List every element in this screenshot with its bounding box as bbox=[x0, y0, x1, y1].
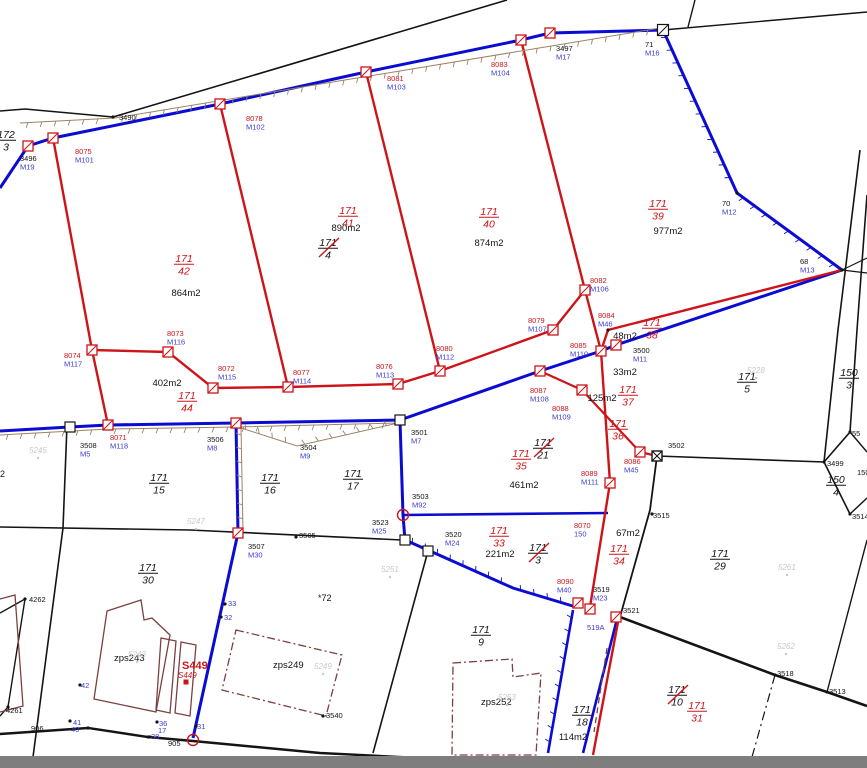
parcel-171-10-den: 10 bbox=[671, 697, 683, 709]
label-55: 55 bbox=[852, 429, 860, 438]
label-3515: 3515 bbox=[653, 511, 670, 520]
label-3518: 3518 bbox=[777, 669, 794, 678]
parcel-172-3-num: 172 bbox=[0, 129, 15, 141]
surv-marker-dot bbox=[86, 726, 89, 729]
area-label-890m2: 890m2 bbox=[331, 223, 360, 234]
parcel-171-18-num: 171 bbox=[573, 704, 591, 716]
label-3490: 3490 bbox=[119, 113, 136, 122]
parcel-171-31-num: 171 bbox=[688, 700, 706, 712]
bottom-bar bbox=[0, 756, 867, 768]
point-code-M24: M24 bbox=[445, 539, 460, 548]
parcel-171-31-den: 31 bbox=[691, 713, 703, 725]
point-code-M112: M112 bbox=[436, 353, 454, 362]
parcel-150-3-num: 150 bbox=[840, 367, 858, 379]
watermark-dot bbox=[37, 457, 39, 459]
parcel-171-29-den: 29 bbox=[713, 561, 726, 573]
point-code-M117: M117 bbox=[64, 360, 82, 369]
parcel-172-3-den: 3 bbox=[3, 142, 9, 154]
surv-marker-dot bbox=[822, 460, 825, 463]
point-code-150: 150 bbox=[574, 530, 587, 539]
watermark-5261: 5261 bbox=[778, 563, 796, 572]
parcel-171-44-num: 171 bbox=[178, 390, 196, 402]
label-3505: 3505 bbox=[299, 531, 316, 540]
parcel-171-44-den: 44 bbox=[181, 403, 193, 415]
parcel-171-40-num: 171 bbox=[480, 206, 498, 218]
point-code-M13: M13 bbox=[800, 266, 815, 275]
parcel-171-37-den: 37 bbox=[622, 397, 635, 409]
watermark-dot bbox=[786, 574, 788, 576]
label-38: 38 bbox=[151, 732, 159, 741]
surv-marker-white-square bbox=[423, 546, 433, 556]
area-label-977m2: 977m2 bbox=[653, 226, 682, 237]
point-code-M92: M92 bbox=[412, 501, 427, 510]
point-code-M19: M19 bbox=[20, 163, 35, 172]
point-code-M45: M45 bbox=[624, 466, 639, 475]
area-label-221m2: 221m2 bbox=[485, 549, 514, 560]
parcel-171-33-num: 171 bbox=[490, 525, 508, 537]
surv-marker-dot bbox=[111, 115, 114, 118]
point-code-M11: M11 bbox=[633, 355, 647, 364]
watermark-5262: 5262 bbox=[777, 642, 795, 651]
parcel-171-21-den: 21 bbox=[536, 450, 549, 462]
point-code-M111: M111 bbox=[581, 478, 599, 487]
watermark-dot bbox=[389, 576, 391, 578]
surv-marker-dot bbox=[321, 714, 324, 717]
area-label-33m2: 33m2 bbox=[613, 367, 637, 378]
watermark-5245: 5245 bbox=[29, 446, 47, 455]
point-code-M23: M23 bbox=[593, 594, 608, 603]
label-3521: 3521 bbox=[623, 606, 640, 615]
area-label-114m2: 114m2 bbox=[559, 732, 587, 743]
surv-marker-dot bbox=[294, 535, 297, 538]
parcel-150-3-den: 3 bbox=[846, 380, 852, 392]
point-code-M12: M12 bbox=[722, 208, 737, 217]
label-40: 40 bbox=[71, 725, 79, 734]
watermark-5243: 5243 bbox=[128, 650, 146, 659]
point-code-M8: M8 bbox=[207, 444, 217, 453]
point-code-M16: M16 bbox=[645, 49, 660, 58]
surv-marker-white-square bbox=[400, 535, 410, 545]
parcel-171-9-num: 171 bbox=[472, 624, 490, 636]
point-code-M46: M46 bbox=[598, 320, 613, 329]
surv-marker-dot bbox=[219, 615, 222, 618]
parcel-171-36-num: 171 bbox=[609, 418, 627, 430]
point-code-M116: M116 bbox=[167, 338, 185, 347]
point-code-M17: M17 bbox=[556, 53, 571, 62]
parcel-150-4-num: 150 bbox=[827, 474, 845, 486]
parcel-171-15-num: 171 bbox=[150, 472, 168, 484]
parcel-171-17-num: 171 bbox=[344, 468, 362, 480]
point-code-M113: M113 bbox=[376, 371, 394, 380]
label-*72: *72 bbox=[318, 593, 332, 603]
parcel-171-39-num: 171 bbox=[649, 198, 667, 210]
point-code-M25: M25 bbox=[372, 527, 387, 536]
label-32: 32 bbox=[224, 613, 232, 622]
label-zps249: zps249 bbox=[273, 660, 304, 671]
watermark-5249: 5249 bbox=[314, 662, 332, 671]
cadastral-map-stage: 3496M198075M1018078M1028081M1038083M1043… bbox=[0, 0, 867, 768]
parcel-171-9-den: 9 bbox=[478, 637, 484, 649]
label-3513: 3513 bbox=[829, 687, 846, 696]
label-33: 33 bbox=[228, 599, 236, 608]
parcel-171-5-den: 5 bbox=[744, 384, 750, 396]
surv-marker-dot bbox=[23, 597, 26, 600]
label-3514: 3514 bbox=[852, 512, 867, 521]
watermark-dot bbox=[322, 673, 324, 675]
parcel-171-16-num: 171 bbox=[261, 472, 279, 484]
parcel-150-4-den: 4 bbox=[833, 487, 839, 499]
area-label-48m2: 48m2 bbox=[613, 331, 637, 342]
point-code-M101: M101 bbox=[75, 156, 94, 165]
parcel-171-17-den: 17 bbox=[347, 481, 360, 493]
point-code-M5: M5 bbox=[80, 450, 90, 459]
surv-marker-dot bbox=[840, 268, 843, 271]
parcel-171-42-den: 42 bbox=[178, 266, 190, 278]
watermark-5247: 5247 bbox=[187, 517, 205, 526]
surv-marker-white-square bbox=[395, 415, 405, 425]
parcel-171-18-den: 18 bbox=[576, 717, 588, 729]
area-label-125m2: 125m2 bbox=[587, 393, 616, 404]
label-519A: 519A bbox=[587, 623, 605, 632]
parcel-171-30-num: 171 bbox=[139, 562, 157, 574]
point-code-M102: M102 bbox=[246, 123, 265, 132]
point-code-M9: M9 bbox=[300, 452, 310, 461]
label-3499: 3499 bbox=[827, 459, 844, 468]
label-31: 31 bbox=[197, 722, 205, 731]
parcel-171-30-den: 30 bbox=[142, 575, 154, 587]
surv-marker-dot bbox=[606, 328, 609, 331]
label-4262: 4262 bbox=[29, 595, 46, 604]
label-4261: 4261 bbox=[6, 706, 23, 715]
point-code-M110: M110 bbox=[570, 350, 588, 359]
point-code-M115: M115 bbox=[218, 373, 236, 382]
point-code-M103: M103 bbox=[387, 83, 406, 92]
label-906: 906 bbox=[31, 724, 44, 733]
parcel-171-38-den: 38 bbox=[646, 330, 658, 342]
label-42: 42 bbox=[81, 681, 89, 690]
watermark-5253: 5253 bbox=[498, 693, 516, 702]
area-label-402m2: 402m2 bbox=[152, 378, 181, 389]
parcel-171-33-den: 33 bbox=[493, 538, 505, 550]
area-label-461m2: 461m2 bbox=[509, 480, 538, 491]
parcel-171-34-den: 34 bbox=[613, 556, 625, 568]
surv-marker-dot bbox=[735, 191, 738, 194]
watermark-dot bbox=[506, 704, 508, 706]
parcel-171-35-num: 171 bbox=[512, 448, 530, 460]
label-3540: 3540 bbox=[326, 711, 343, 720]
surv-marker-dot bbox=[68, 719, 71, 722]
area-label-874m2: 874m2 bbox=[474, 238, 503, 249]
parcel-171-42-num: 171 bbox=[175, 253, 193, 265]
cadastral-map-canvas[interactable]: 3496M198075M1018078M1028081M1038083M1043… bbox=[0, 0, 867, 768]
parcel-171-38-num: 171 bbox=[643, 317, 661, 329]
parcel-171-35-den: 35 bbox=[515, 461, 527, 473]
point-code-M108: M108 bbox=[530, 395, 549, 404]
point-code-M114: M114 bbox=[293, 377, 311, 386]
parcel-171-15-den: 15 bbox=[153, 485, 165, 497]
watermark-5251: 5251 bbox=[381, 565, 399, 574]
label-3502: 3502 bbox=[668, 441, 685, 450]
label-S449: S449 bbox=[178, 671, 197, 680]
point-code-M106: M106 bbox=[590, 285, 609, 294]
surv-marker-white-square bbox=[65, 422, 75, 432]
label-150: 150 bbox=[857, 468, 867, 477]
parcel-171-37-num: 171 bbox=[619, 384, 637, 396]
point-code-M109: M109 bbox=[552, 413, 571, 422]
parcel-171-36-den: 36 bbox=[612, 431, 624, 443]
parcel-171-41-num: 171 bbox=[339, 205, 357, 217]
watermark-dot bbox=[195, 528, 197, 530]
label-905: 905 bbox=[168, 739, 181, 748]
point-code-M107: M107 bbox=[528, 325, 547, 334]
watermark-dot bbox=[785, 653, 787, 655]
label-2: 2 bbox=[0, 469, 5, 479]
area-label-67m2: 67m2 bbox=[616, 528, 640, 539]
point-code-M118: M118 bbox=[110, 442, 128, 451]
parcel-171-29-num: 171 bbox=[711, 548, 729, 560]
parcel-171-39-den: 39 bbox=[652, 211, 664, 223]
point-code-M7: M7 bbox=[411, 437, 421, 446]
parcel-171-40-den: 40 bbox=[483, 219, 495, 231]
point-code-M40: M40 bbox=[557, 586, 572, 595]
watermark-5228: 5228 bbox=[747, 366, 765, 375]
area-label-864m2: 864m2 bbox=[171, 288, 200, 299]
parcel-171-34-num: 171 bbox=[610, 543, 628, 555]
point-code-M30: M30 bbox=[248, 551, 263, 560]
surv-marker-dot bbox=[223, 602, 226, 605]
watermark-dot bbox=[136, 661, 138, 663]
parcel-171-16-den: 16 bbox=[264, 485, 276, 497]
surv-marker-red-dot bbox=[184, 680, 189, 685]
watermark-dot bbox=[755, 377, 757, 379]
point-code-M104: M104 bbox=[491, 69, 510, 78]
